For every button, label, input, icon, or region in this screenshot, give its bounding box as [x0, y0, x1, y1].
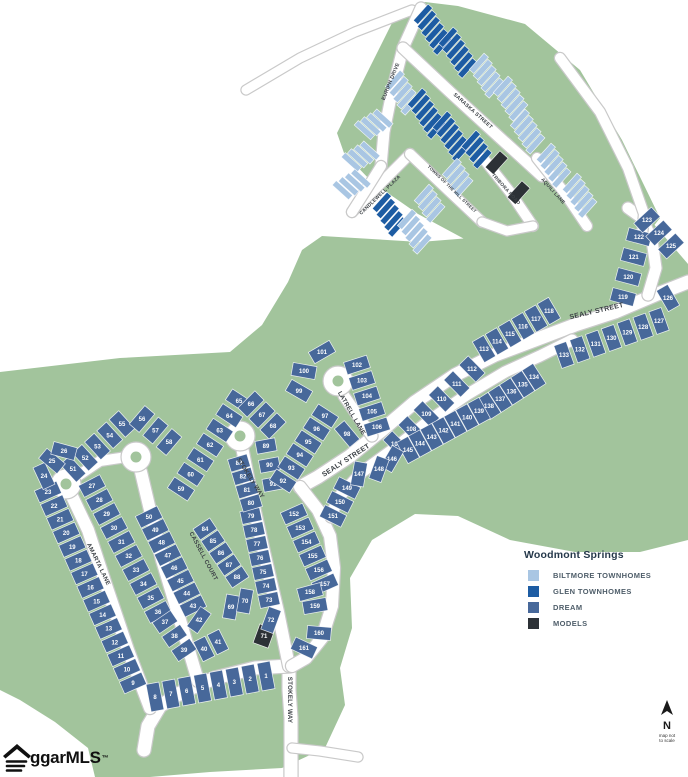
lot-number: 34 — [140, 582, 147, 588]
lot-number: 115 — [505, 332, 515, 338]
legend-label: BILTMORE TOWNHOMES — [553, 571, 651, 580]
lot-number: 73 — [266, 598, 273, 604]
lot-number: 151 — [328, 514, 339, 520]
legend: Woodmont Springs BILTMORE TOWNHOMESGLEN … — [524, 549, 684, 632]
lot-number: 131 — [591, 342, 602, 348]
lot-number: 141 — [450, 422, 461, 428]
lot-number: 40 — [201, 647, 208, 653]
lot-number: 113 — [479, 347, 489, 353]
lot-number: 140 — [462, 416, 473, 422]
lot-number: 57 — [152, 429, 159, 435]
map-canvas: 8765432191011121314151617181920212223272… — [0, 0, 688, 777]
lot-number: 11 — [118, 654, 125, 660]
lot-number: 75 — [260, 570, 267, 576]
legend-item: MODELS — [524, 616, 684, 631]
lot-number: 68 — [270, 424, 277, 430]
lot-number: 81 — [244, 488, 251, 494]
lot-number: 89 — [263, 444, 270, 450]
lot-number: 66 — [248, 402, 255, 408]
legend-label: GLEN TOWNHOMES — [553, 587, 632, 596]
lot-number: 78 — [251, 528, 258, 534]
lot-number: 156 — [314, 568, 325, 574]
lot-number: 18 — [75, 558, 82, 564]
lot-number: 77 — [254, 542, 261, 548]
lot-number: 63 — [216, 429, 223, 435]
lot-number: 145 — [403, 448, 414, 454]
lot-number: 159 — [310, 604, 321, 610]
lot-number: 122 — [634, 235, 645, 241]
lot-number: 28 — [96, 498, 103, 504]
lot-number: 116 — [518, 324, 528, 330]
lot-number: 118 — [544, 309, 554, 315]
lot-number: 136 — [506, 390, 517, 396]
lot-number: 41 — [215, 640, 222, 646]
north-arrow-icon — [650, 699, 684, 717]
house-icon — [1, 742, 33, 774]
lot-number: 120 — [623, 275, 634, 281]
lot-number: 43 — [190, 604, 197, 610]
lot-number: 38 — [171, 634, 178, 640]
legend-item: DREAM — [524, 600, 684, 615]
lot-number: 84 — [202, 527, 209, 533]
legend-swatch — [528, 586, 539, 597]
lot-number: 149 — [342, 486, 353, 492]
lot-number: 50 — [146, 515, 153, 521]
community-site-map: 8765432191011121314151617181920212223272… — [0, 0, 688, 777]
lot-number: 85 — [210, 539, 217, 545]
lot-number: 92 — [280, 479, 287, 485]
legend-item: BILTMORE TOWNHOMES — [524, 568, 684, 583]
lot-number: 62 — [207, 443, 214, 449]
compass-note: map not to scale — [650, 733, 684, 743]
legend-swatch — [528, 618, 539, 629]
lot-number: 58 — [166, 440, 173, 446]
lot-number: 154 — [301, 540, 312, 546]
lot-number: 80 — [248, 501, 255, 507]
street-label: STOKELY WAY — [286, 677, 293, 724]
lot-number: 150 — [335, 500, 346, 506]
lot-number: 100 — [299, 369, 310, 375]
lot-number: 86 — [218, 551, 225, 557]
lot-number: 32 — [125, 554, 132, 560]
lot-number: 161 — [299, 646, 310, 652]
lot-number: 143 — [427, 435, 438, 441]
lot-number: 30 — [111, 526, 118, 532]
lot-number: 102 — [352, 363, 363, 369]
lot-number: 94 — [296, 453, 303, 459]
lot-number: 126 — [663, 296, 674, 302]
lot-number: 105 — [367, 410, 378, 416]
lot-number: 144 — [415, 442, 426, 448]
lot-number: 87 — [226, 563, 233, 569]
lot-number: 17 — [81, 572, 88, 578]
lot-number: 60 — [187, 473, 194, 479]
lot-number: 88 — [234, 575, 241, 581]
lot-number: 153 — [295, 526, 306, 532]
lot-number: 76 — [257, 556, 264, 562]
lot-number: 72 — [268, 618, 275, 624]
lot-number: 39 — [181, 648, 188, 654]
lot-number: 127 — [654, 319, 665, 325]
lot-number: 109 — [421, 412, 432, 418]
lot-number: 99 — [296, 389, 303, 395]
lot-number: 147 — [354, 472, 365, 478]
lot-number: 104 — [362, 394, 373, 400]
lot-number: 110 — [437, 397, 447, 403]
lot-number: 106 — [372, 425, 383, 431]
lot-number: 23 — [45, 490, 52, 496]
mls-logo-text: ggarMLS — [30, 748, 101, 768]
lot-number: 10 — [124, 668, 131, 674]
lot-number: 71 — [261, 634, 268, 640]
lot-number: 97 — [322, 414, 329, 420]
lot-number: 95 — [305, 440, 312, 446]
lot-number: 24 — [41, 474, 48, 480]
lot-number: 64 — [226, 414, 233, 420]
cul-de-sac-island — [333, 376, 344, 387]
lot-number: 61 — [197, 458, 204, 464]
lot-number: 14 — [99, 613, 106, 619]
legend-label: DREAM — [553, 603, 583, 612]
lot-number: 114 — [492, 340, 502, 346]
legend-item: GLEN TOWNHOMES — [524, 584, 684, 599]
lot-number: 112 — [467, 367, 477, 373]
lot-number: 52 — [82, 456, 89, 462]
lot-number: 142 — [438, 429, 449, 435]
lot-number: 132 — [575, 348, 586, 354]
lot-number: 160 — [314, 631, 325, 637]
cul-de-sac-island — [235, 431, 246, 442]
lot-number: 36 — [155, 610, 162, 616]
lot-number: 158 — [305, 590, 316, 596]
lot-number: 31 — [118, 540, 125, 546]
lot-number: 139 — [474, 409, 485, 415]
legend-swatch — [528, 570, 539, 581]
lot-number: 16 — [87, 586, 94, 592]
lot-number: 54 — [106, 433, 113, 439]
lot-number: 42 — [196, 618, 203, 624]
lot-number: 55 — [119, 422, 126, 428]
lot-number: 27 — [89, 484, 96, 490]
lot-number: 25 — [49, 459, 56, 465]
lot-number: 51 — [70, 467, 77, 473]
lot-number: 148 — [374, 467, 385, 473]
lot-number: 124 — [654, 231, 665, 237]
legend-title: Woodmont Springs — [524, 549, 684, 561]
lot-number: 46 — [171, 566, 178, 572]
lot-number: 103 — [357, 379, 368, 385]
lot-number: 45 — [177, 579, 184, 585]
lot: 160 — [306, 625, 331, 640]
lot-number: 133 — [559, 353, 570, 359]
lot-number: 111 — [452, 382, 462, 388]
lot-number: 74 — [263, 584, 270, 590]
lot-number: 101 — [317, 350, 328, 356]
lot-number: 123 — [642, 218, 653, 224]
lot-number: 21 — [57, 517, 64, 523]
lot-number: 35 — [147, 596, 154, 602]
legend-label: MODELS — [553, 619, 587, 628]
cul-de-sac-island — [61, 479, 72, 490]
lot-number: 117 — [531, 317, 541, 323]
lot-number: 59 — [178, 487, 185, 493]
lot-number: 56 — [139, 417, 146, 423]
lot-number: 53 — [94, 445, 101, 451]
lot-number: 90 — [266, 463, 273, 469]
lot-number: 121 — [629, 255, 640, 261]
lot-number: 22 — [51, 504, 58, 510]
lot-number: 119 — [618, 295, 628, 301]
lot-number: 67 — [259, 413, 266, 419]
lot-number: 157 — [320, 582, 331, 588]
lot-number: 96 — [313, 427, 320, 433]
cul-de-sac-island — [131, 452, 142, 463]
lot-number: 48 — [158, 541, 165, 547]
lot-number: 26 — [61, 449, 68, 455]
lot-number: 20 — [63, 531, 70, 537]
lot-number: 125 — [666, 244, 677, 250]
lot-number: 128 — [638, 325, 649, 331]
lot-number: 12 — [111, 640, 118, 646]
lot-number: 49 — [152, 528, 159, 534]
mls-logo-tm: ™ — [102, 755, 109, 762]
lot-number: 19 — [69, 545, 76, 551]
legend-items: BILTMORE TOWNHOMESGLEN TOWNHOMESDREAMMOD… — [524, 568, 684, 631]
lot-number: 93 — [288, 466, 295, 472]
lot-number: 155 — [308, 554, 319, 560]
lot-number: 47 — [165, 553, 172, 559]
lot-number: 137 — [495, 397, 506, 403]
lot-number: 152 — [289, 512, 300, 518]
lot-number: 134 — [529, 375, 540, 381]
compass: N map not to scale — [650, 699, 684, 743]
lot-number: 33 — [133, 568, 140, 574]
lot-number: 135 — [518, 382, 529, 388]
lot-number: 129 — [622, 331, 633, 337]
lot-number: 13 — [105, 627, 112, 633]
lot-number: 15 — [93, 599, 100, 605]
lot-number: 37 — [162, 620, 169, 626]
lot-number: 79 — [248, 514, 255, 520]
lot-number: 29 — [103, 512, 110, 518]
compass-north-label: N — [650, 722, 684, 731]
lot-number: 44 — [183, 591, 190, 597]
lot-number: 69 — [228, 605, 235, 611]
legend-swatch — [528, 602, 539, 613]
lot-number: 98 — [344, 432, 351, 438]
mls-logo: ggarMLS ™ — [1, 742, 109, 774]
lot-number: 70 — [242, 599, 249, 605]
lot-number: 130 — [606, 336, 617, 342]
